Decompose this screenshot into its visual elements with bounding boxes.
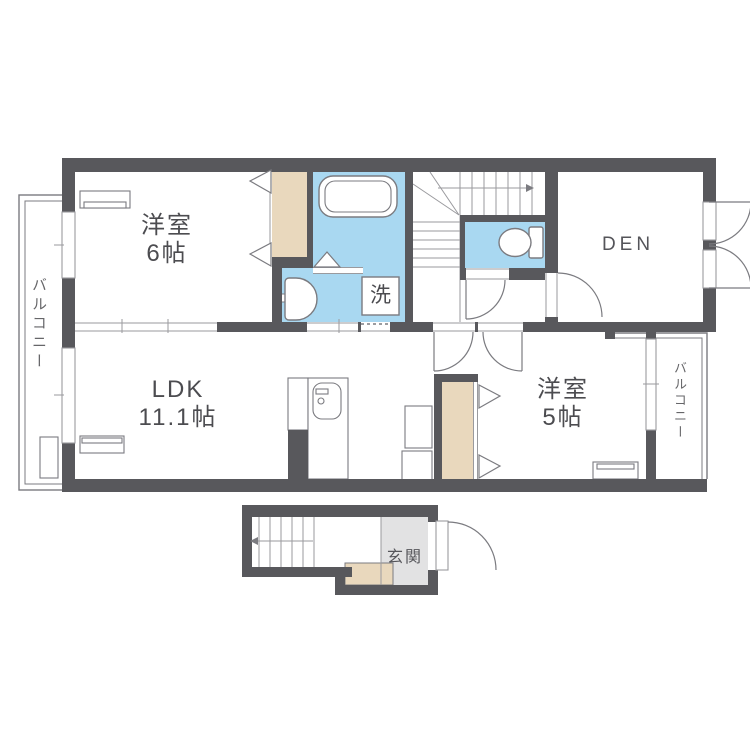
closet-western6: [272, 172, 307, 257]
balcony-right-label: バルコニー: [670, 361, 689, 441]
den-label: DEN: [568, 234, 688, 256]
western6-size: 6帖: [87, 240, 247, 268]
balcony-left-label: バルコニー: [28, 277, 49, 372]
ldk-size: 11.1帖: [98, 404, 258, 432]
ldk-name: LDK: [98, 376, 258, 404]
ldk-label: LDK 11.1帖: [98, 376, 258, 432]
opening-western6-ldk: [75, 319, 217, 333]
balcony-partition: [40, 437, 58, 478]
door-hall-to-western5: [478, 322, 523, 371]
kitchen-sink-icon: [313, 383, 341, 419]
air-conditioner-icon-western6: [80, 191, 130, 208]
door-toilet: [466, 268, 509, 319]
air-conditioner-icon-western5: [593, 462, 638, 479]
western6-label: 洋室 6帖: [87, 212, 247, 268]
western5-size: 5帖: [483, 404, 643, 432]
door-den: [545, 273, 602, 317]
entrance-door: [436, 521, 496, 570]
air-conditioner-icon-ldk: [80, 436, 124, 453]
bathtub-icon: [319, 176, 397, 217]
entrance-label: 玄関: [365, 543, 445, 567]
western6-name: 洋室: [87, 212, 247, 240]
closet-western5: [442, 382, 473, 479]
opening-dashed: [361, 322, 390, 332]
appliance-slots: [402, 406, 432, 480]
door-hall-to-ldk: [433, 322, 475, 371]
western5-name: 洋室: [483, 376, 643, 404]
floor-plan-drawing: [0, 0, 750, 750]
closet-western6-door: [250, 170, 271, 266]
toilet-icon: [499, 227, 543, 258]
stairs-up-arrow-icon: [526, 184, 534, 192]
floor-plan: 洋室 6帖 LDK 11.1帖 洋室 5帖 DEN 玄関 洗 バルコニー バルコ…: [0, 0, 750, 750]
western5-label: 洋室 5帖: [483, 376, 643, 432]
laundry-label: 洗: [362, 277, 399, 315]
